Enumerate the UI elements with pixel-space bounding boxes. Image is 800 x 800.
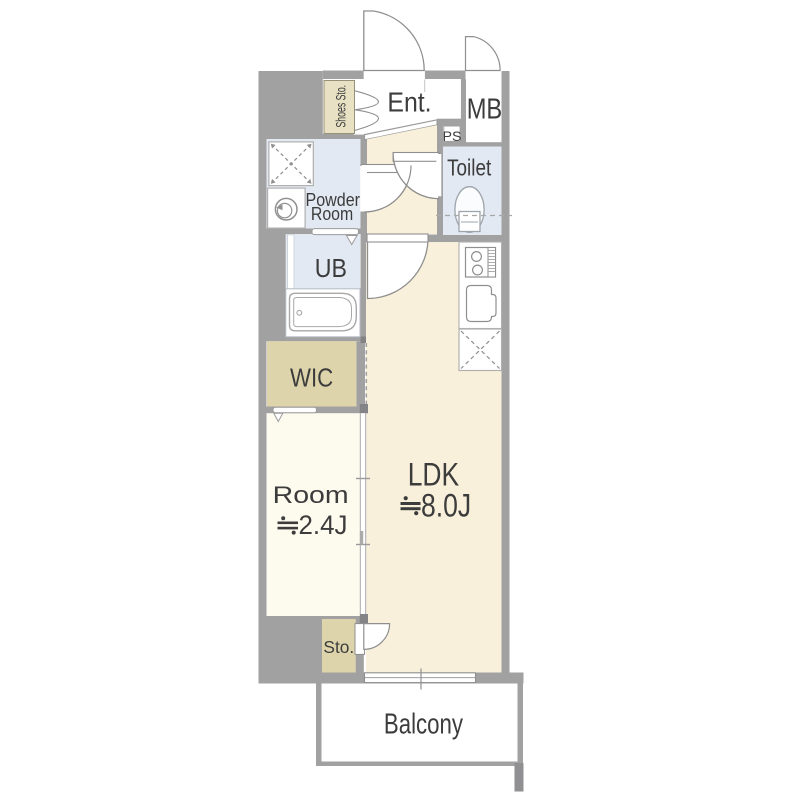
svg-text:Shoes Sto.: Shoes Sto. <box>333 85 348 128</box>
svg-text:Ent.: Ent. <box>387 87 431 118</box>
svg-text:MB: MB <box>467 92 503 124</box>
svg-text:Room: Room <box>311 203 353 224</box>
svg-text:8.0J: 8.0J <box>421 487 471 523</box>
svg-text:UB: UB <box>315 253 347 283</box>
svg-text:Balcony: Balcony <box>384 707 464 739</box>
svg-text:Room: Room <box>273 482 349 509</box>
svg-text:PS: PS <box>443 128 462 144</box>
svg-text:Toilet: Toilet <box>447 155 492 181</box>
svg-text:Sto.: Sto. <box>323 637 354 657</box>
svg-text:WIC: WIC <box>290 363 333 393</box>
svg-text:2.4J: 2.4J <box>299 510 348 540</box>
